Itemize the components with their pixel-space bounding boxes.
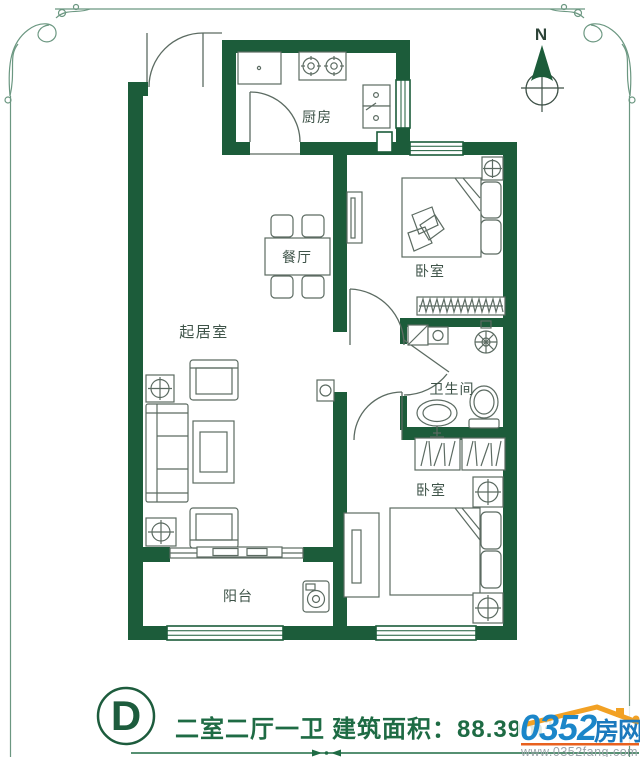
dining-chair-icon bbox=[302, 276, 324, 298]
ac-unit-icon bbox=[473, 477, 503, 507]
ac-unit-icon bbox=[473, 593, 503, 623]
bedroom1-north-window bbox=[410, 142, 463, 155]
entry-door bbox=[147, 33, 222, 87]
balcony-washer-icon bbox=[303, 581, 329, 612]
bed-icon bbox=[402, 178, 501, 257]
fridge-icon bbox=[238, 52, 281, 84]
ac-unit-icon bbox=[146, 518, 176, 546]
north-label: N bbox=[535, 25, 547, 44]
bedroom2-label: 卧室 bbox=[416, 482, 446, 498]
dining-chair-icon bbox=[271, 215, 293, 237]
balcony-window bbox=[167, 626, 283, 640]
balcony-label: 阳台 bbox=[223, 588, 253, 604]
bathroom-label: 卫生间 bbox=[430, 381, 475, 397]
bedroom1-door bbox=[350, 289, 404, 345]
bedroom1-label: 卧室 bbox=[415, 263, 445, 279]
bedroom2-door bbox=[354, 392, 402, 440]
armchair-icon bbox=[190, 508, 238, 548]
bedroom2-furniture bbox=[344, 438, 505, 623]
kitchen-service-notch bbox=[377, 132, 392, 152]
tv-stand-icon bbox=[197, 547, 282, 557]
ac-unit-icon bbox=[482, 157, 503, 180]
living-room-label: 起居室 bbox=[179, 324, 229, 341]
dining-chair-icon bbox=[302, 215, 324, 237]
bath-cabinet-icon bbox=[408, 325, 448, 345]
bathroom-fixtures bbox=[408, 321, 499, 437]
bookshelf-icon bbox=[415, 438, 505, 470]
ac-unit-icon bbox=[146, 375, 174, 402]
shelf-icon bbox=[347, 192, 362, 243]
kitchen-window bbox=[396, 80, 410, 128]
dining-chair-icon bbox=[271, 276, 293, 298]
dining-label: 餐厅 bbox=[282, 249, 312, 265]
floorplan-canvas: 厨房 餐厅 卧室 卫生间 起居室 阳台 卧室 N D 二室二厅一卫 建筑面积：8… bbox=[0, 0, 640, 757]
watermark-logo: 0352 房网 www.0352fang.com bbox=[518, 706, 640, 757]
sofa-icon bbox=[146, 404, 188, 502]
logo-number: 0352 bbox=[520, 707, 597, 748]
north-compass-icon: N bbox=[521, 25, 564, 112]
plan-letter: D bbox=[111, 692, 141, 739]
coffee-table-icon bbox=[193, 421, 234, 483]
living-room-furniture bbox=[146, 360, 334, 557]
logo-suffix: 房网 bbox=[594, 717, 640, 746]
bedroom1-furniture bbox=[347, 157, 505, 315]
wardrobe-icon bbox=[417, 297, 505, 315]
corner-ornament-top-left bbox=[5, 5, 90, 104]
layout-text: 二室二厅一卫 bbox=[175, 715, 325, 743]
kitchen-door bbox=[250, 92, 300, 154]
kitchen-label: 厨房 bbox=[302, 109, 332, 125]
tv-cabinet-icon bbox=[344, 513, 379, 597]
water-heater-icon bbox=[317, 380, 334, 401]
stove-icon bbox=[299, 52, 346, 80]
kitchen-sink-icon bbox=[363, 85, 390, 128]
floorplan-page: 厨房 餐厅 卧室 卫生间 起居室 阳台 卧室 N D 二室二厅一卫 建筑面积：8… bbox=[0, 0, 640, 757]
bedroom2-south-window bbox=[376, 626, 476, 640]
logo-url: www.0352fang.com bbox=[520, 745, 638, 757]
bed-icon bbox=[390, 508, 501, 595]
armchair-icon bbox=[190, 360, 238, 400]
